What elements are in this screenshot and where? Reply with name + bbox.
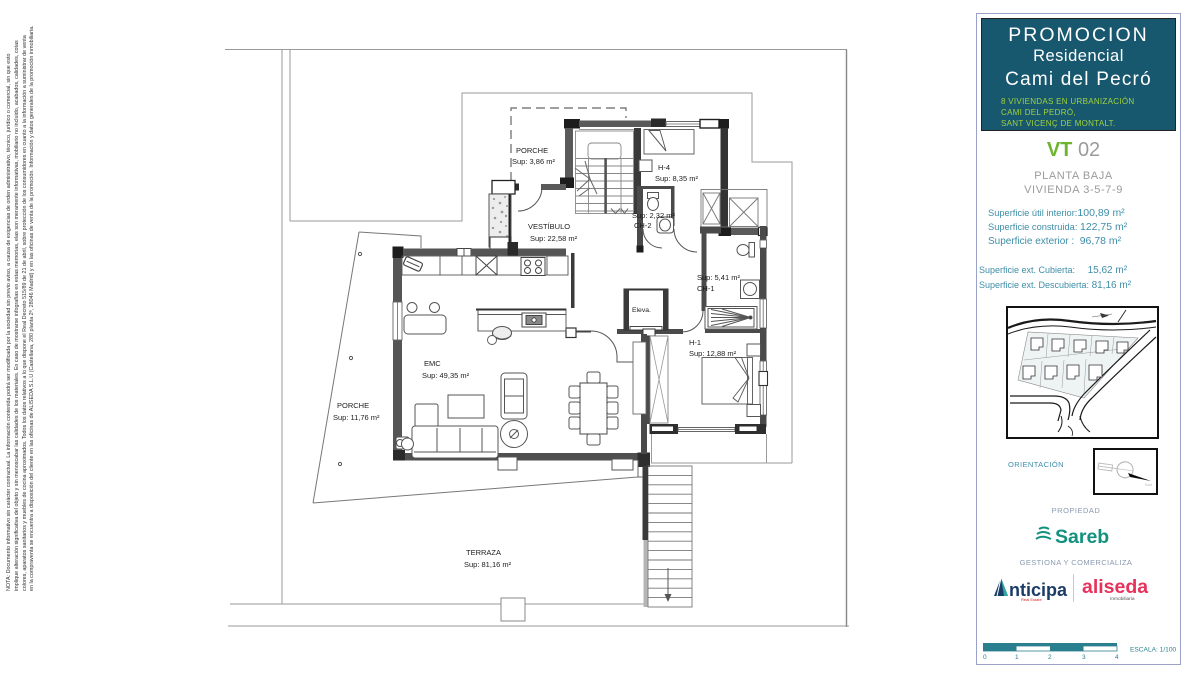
svg-text:ESCALA: 1/100: ESCALA: 1/100 xyxy=(1130,647,1177,654)
svg-text:Este: Este xyxy=(1145,483,1152,487)
svg-text:VESTÍBULO: VESTÍBULO xyxy=(528,222,570,231)
svg-text:Sup: 11,76 m²: Sup: 11,76 m² xyxy=(333,413,380,422)
svg-text:CH-2: CH-2 xyxy=(634,221,652,230)
svg-text:Sareb: Sareb xyxy=(1055,526,1109,547)
svg-text:Real Estate: Real Estate xyxy=(1021,597,1042,602)
svg-text:0: 0 xyxy=(983,654,987,661)
svg-text:Sup: 2,32 m²: Sup: 2,32 m² xyxy=(632,211,675,220)
svg-text:Sup: 49,35 m²: Sup: 49,35 m² xyxy=(422,371,470,380)
svg-text:H-4: H-4 xyxy=(658,163,670,172)
svg-text:H-1: H-1 xyxy=(689,338,701,347)
svg-text:Sup: 81,16 m²: Sup: 81,16 m² xyxy=(464,560,512,569)
svg-text:3: 3 xyxy=(1082,654,1086,661)
svg-text:Inmobiliaria: Inmobiliaria xyxy=(1110,596,1135,602)
svg-text:CH-1: CH-1 xyxy=(697,284,715,293)
svg-text:Sup: 3,86 m²: Sup: 3,86 m² xyxy=(512,157,555,166)
svg-text:PORCHE: PORCHE xyxy=(337,401,369,410)
svg-text:aliseda: aliseda xyxy=(1082,576,1148,598)
svg-text:PORCHE: PORCHE xyxy=(516,146,548,155)
svg-text:1: 1 xyxy=(1015,654,1019,661)
svg-text:2: 2 xyxy=(1048,654,1052,661)
svg-text:Sup: 22,58 m²: Sup: 22,58 m² xyxy=(530,234,578,243)
svg-text:Sup: 12,88 m²: Sup: 12,88 m² xyxy=(689,349,737,358)
svg-text:EMC: EMC xyxy=(424,359,441,368)
svg-text:Sup: 5,41 m²: Sup: 5,41 m² xyxy=(697,273,740,282)
svg-text:4: 4 xyxy=(1115,654,1119,661)
svg-text:TERRAZA: TERRAZA xyxy=(466,548,501,557)
svg-text:Eleva.: Eleva. xyxy=(632,307,651,314)
svg-text:Sup: 8,35 m²: Sup: 8,35 m² xyxy=(655,174,698,183)
